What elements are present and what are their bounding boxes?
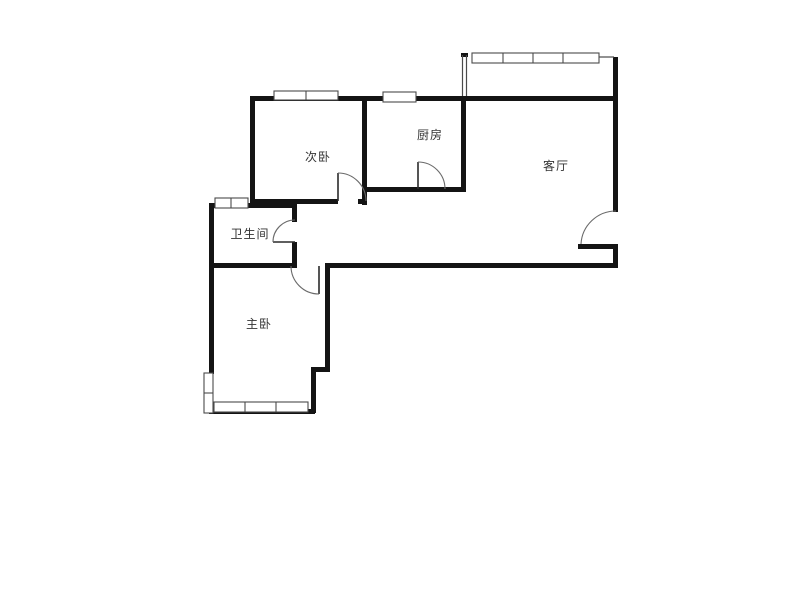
walls [209, 53, 618, 414]
wall-kitchen-right [461, 101, 466, 192]
room-label-kitchen: 厨房 [417, 127, 443, 142]
wall-hall-bottom [325, 263, 618, 268]
window-balcony [472, 53, 599, 63]
wall-bathroom-right-upper [292, 203, 297, 222]
wall-kitchen-bottom [362, 187, 466, 192]
floor-plan-canvas: 次卧 厨房 客厅 卫生间 主卧 [0, 0, 800, 600]
wall-right-outer-upper [613, 57, 618, 212]
door-bathroom [273, 220, 295, 242]
room-label-living-room: 客厅 [543, 158, 569, 173]
door-bedroom2 [338, 173, 366, 201]
window-kitchen [383, 92, 416, 102]
room-label-master-bedroom: 主卧 [246, 317, 272, 331]
room-label-secondary-bedroom: 次卧 [305, 150, 331, 164]
room-labels: 次卧 厨房 客厅 卫生间 主卧 [230, 127, 569, 331]
door-entry [581, 211, 616, 244]
floor-plan-svg: 次卧 厨房 客厅 卫生间 主卧 [0, 0, 800, 600]
wall-bedroom2-left [250, 96, 255, 203]
window-master-bottom [214, 402, 308, 412]
wall-left-outer [209, 203, 214, 374]
window-bedroom2 [274, 91, 338, 100]
window-bathroom [215, 198, 248, 208]
wall-entry-jog [578, 244, 618, 249]
door-master [291, 266, 319, 294]
door-kitchen [418, 162, 445, 189]
window-master-left [204, 373, 213, 413]
wall-master-top [209, 263, 296, 268]
room-label-bathroom: 卫生间 [230, 227, 269, 241]
wall-master-right-lower [311, 367, 316, 413]
doors [273, 162, 616, 294]
wall-master-right-upper [325, 263, 330, 372]
